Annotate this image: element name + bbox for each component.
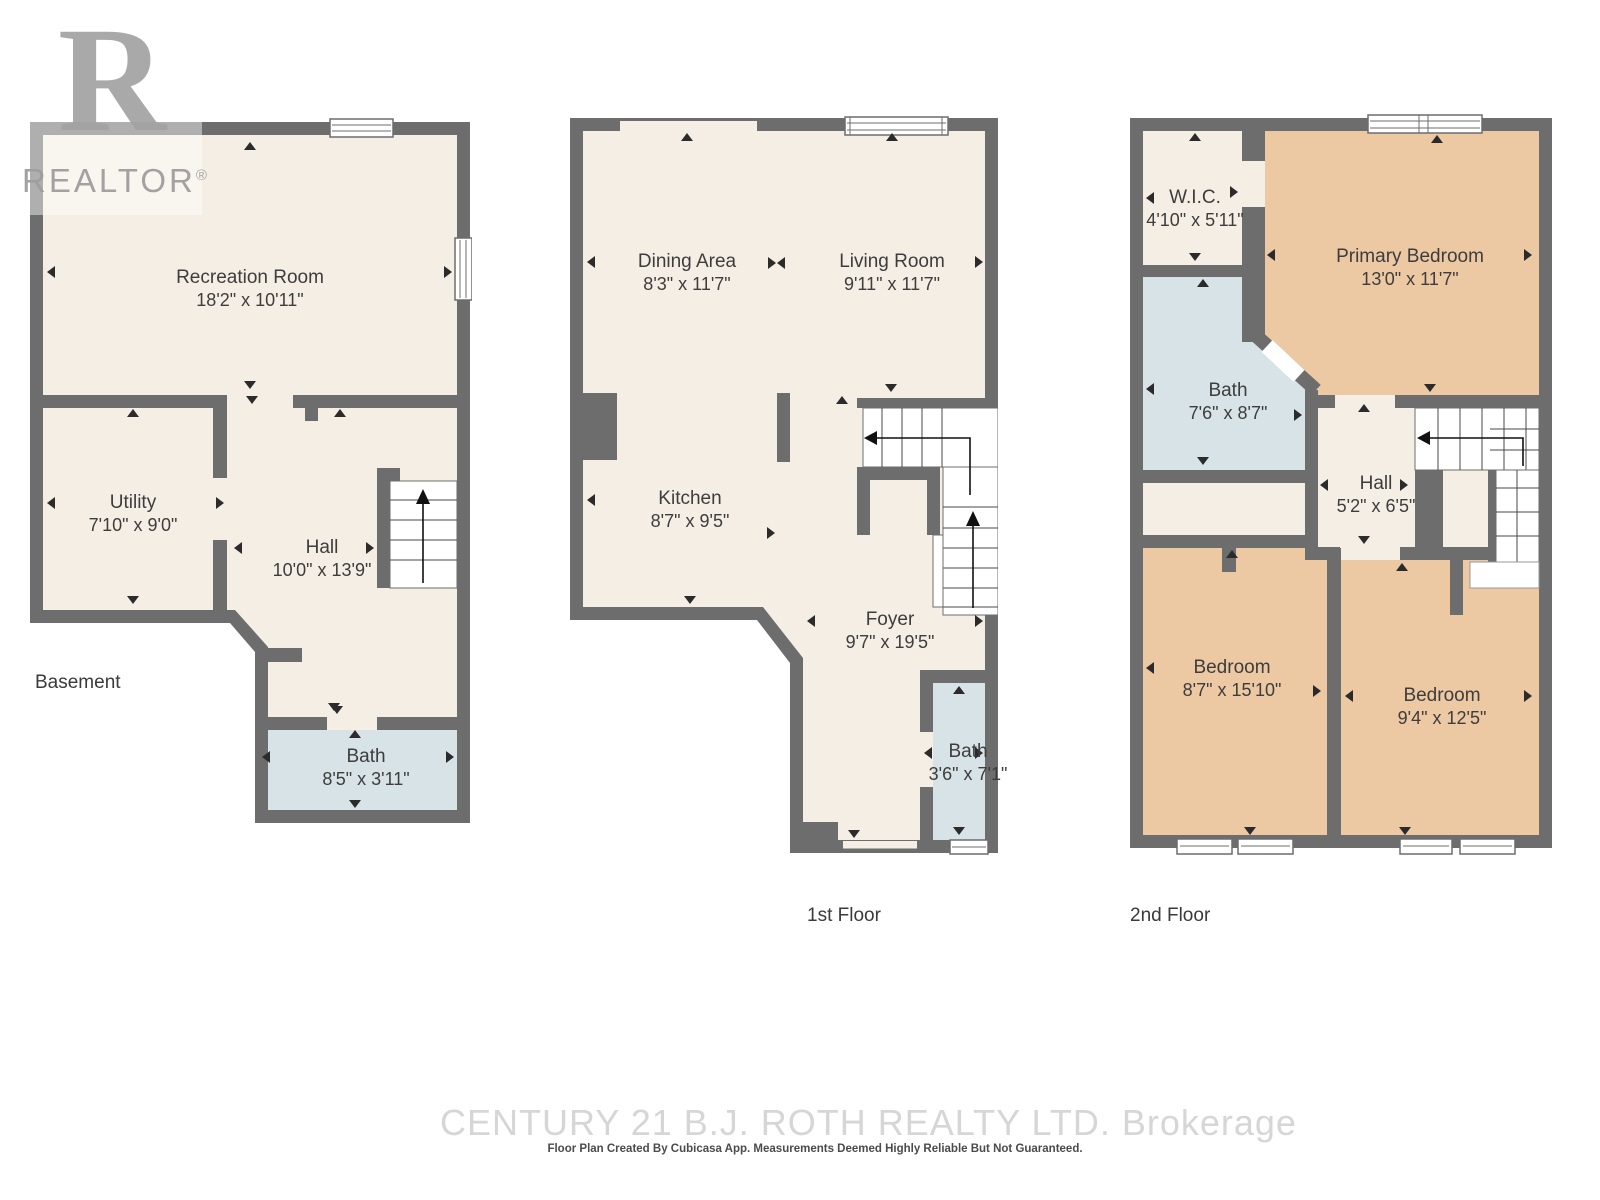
room-label-utility: Utility 7'10" x 9'0" xyxy=(89,491,178,537)
room-label-second-hall: Hall 5'2" x 6'5" xyxy=(1337,472,1416,518)
room-label-recreation: Recreation Room 18'2" x 10'11" xyxy=(176,266,324,312)
room-label-bedroom-left: Bedroom 8'7" x 15'10" xyxy=(1183,656,1282,702)
room-label-basement-bath: Bath 8'5" x 3'11" xyxy=(322,745,409,791)
basement-window-top xyxy=(330,119,393,137)
basement-stairs xyxy=(390,481,457,588)
room-label-wic: W.I.C. 4'10" x 5'11" xyxy=(1146,186,1243,232)
brokerage-watermark: CENTURY 21 B.J. ROTH REALTY LTD. Brokera… xyxy=(440,1102,1190,1144)
room-label-foyer: Foyer 9'7" x 19'5" xyxy=(846,608,935,654)
second-window-top xyxy=(1368,115,1482,133)
realtor-r-icon: R xyxy=(22,0,202,160)
top-opening xyxy=(620,121,757,131)
floor-label-first: 1st Floor xyxy=(807,905,881,927)
stair-void xyxy=(1470,562,1539,588)
first-bath-window xyxy=(950,840,988,854)
floor-label-second: 2nd Floor xyxy=(1130,905,1210,927)
room-label-first-bath: Bath 3'6" x 7'1" xyxy=(929,740,1008,786)
floorplan-page: Recreation Room 18'2" x 10'11" Utility 7… xyxy=(0,0,1600,1200)
basement-plan xyxy=(30,118,472,828)
first-window-top xyxy=(845,117,948,135)
realtor-wordmark: REALTOR® xyxy=(22,162,202,200)
realtor-logo: R REALTOR® xyxy=(22,0,202,215)
room-label-basement-hall: Hall 10'0" x 13'9" xyxy=(273,536,372,582)
room-label-dining: Dining Area 8'3" x 11'7" xyxy=(638,250,736,296)
room-label-bedroom-right: Bedroom 9'4" x 12'5" xyxy=(1398,684,1487,730)
room-label-primary-bedroom: Primary Bedroom 13'0" x 11'7" xyxy=(1336,245,1484,291)
basement-window-right xyxy=(455,238,472,300)
wall xyxy=(43,395,227,408)
room-label-kitchen: Kitchen 8'7" x 9'5" xyxy=(651,487,730,533)
disclaimer-text: Floor Plan Created By Cubicasa App. Meas… xyxy=(430,1143,1200,1155)
room-label-living: Living Room 9'11" x 11'7" xyxy=(839,250,945,296)
floor-label-basement: Basement xyxy=(35,672,121,694)
room-label-second-bath: Bath 7'6" x 8'7" xyxy=(1189,379,1268,425)
